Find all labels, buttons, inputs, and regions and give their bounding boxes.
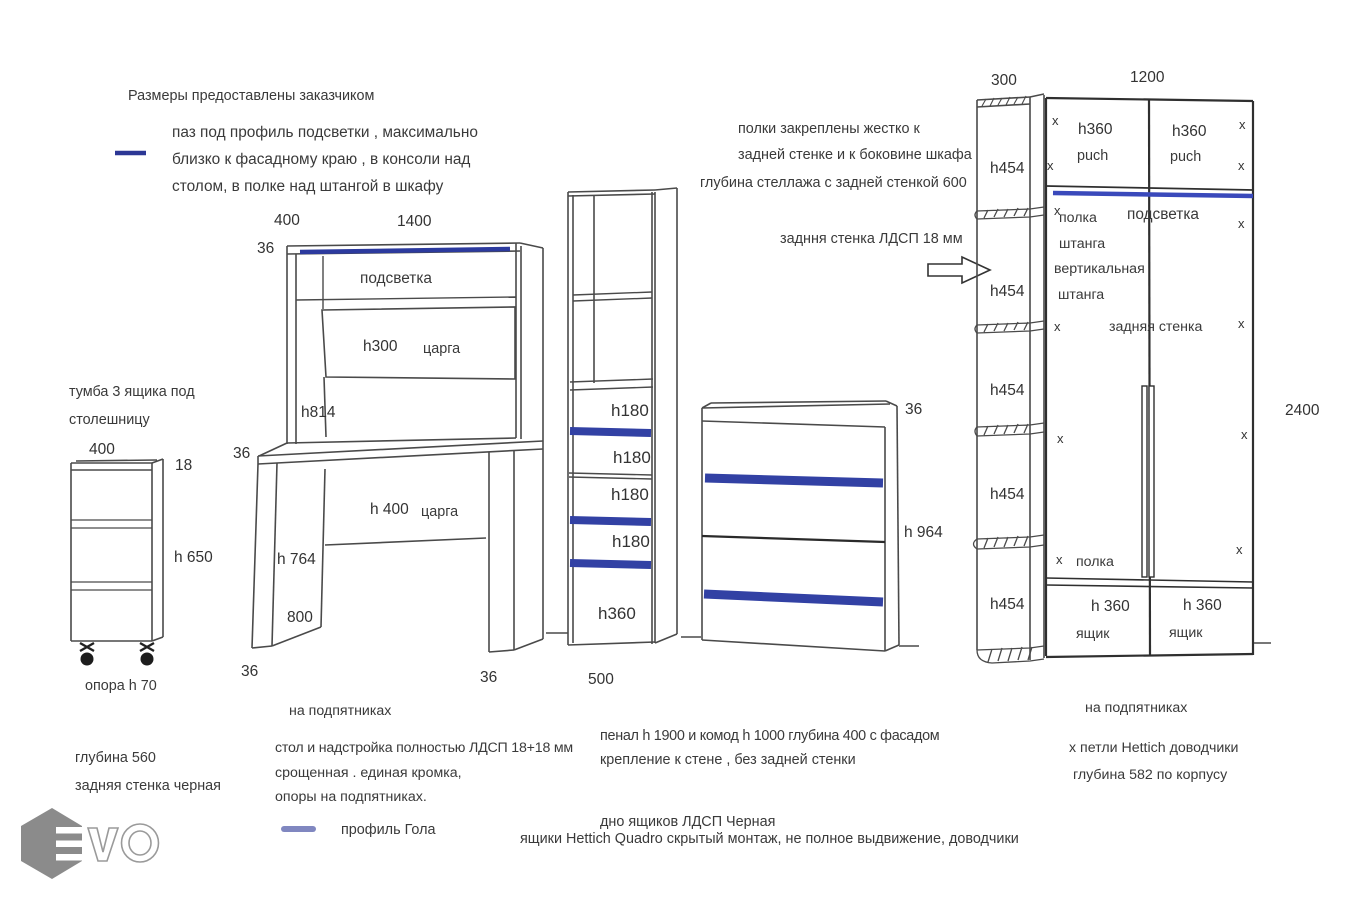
svg-text:паз под профиль подсветки , ма: паз под профиль подсветки , максимально	[172, 124, 478, 141]
svg-text:puch: puch	[1077, 148, 1108, 164]
svg-text:штанга: штанга	[1059, 236, 1105, 252]
svg-text:h454: h454	[990, 486, 1025, 503]
svg-text:задння стенка ЛДСП 18 мм: задння стенка ЛДСП 18 мм	[780, 231, 963, 247]
svg-text:puch: puch	[1170, 149, 1201, 165]
svg-text:пенал h 1900 и комод h 1000 г: пенал h 1900 и комод h 1000 глубина 400 …	[600, 728, 939, 744]
svg-text:столешницу: столешницу	[69, 412, 150, 428]
svg-text:глубина 560: глубина 560	[75, 750, 156, 766]
svg-text:х петли Hettich доводчики: х петли Hettich доводчики	[1069, 740, 1238, 756]
svg-text:x: x	[1057, 431, 1064, 446]
svg-text:штанга: штанга	[1058, 287, 1104, 303]
svg-text:36: 36	[480, 669, 497, 686]
svg-text:18: 18	[175, 457, 192, 474]
svg-text:36: 36	[233, 445, 250, 462]
svg-text:h300: h300	[363, 338, 398, 355]
svg-text:h180: h180	[612, 532, 650, 551]
svg-text:h 400: h 400	[370, 501, 409, 518]
svg-text:500: 500	[588, 671, 614, 688]
svg-text:вертикальная: вертикальная	[1054, 261, 1145, 277]
svg-text:Размеры предоставлены заказчик: Размеры предоставлены заказчиком	[128, 88, 374, 104]
svg-text:h 650: h 650	[174, 549, 213, 566]
svg-text:крепление к стене , без задне: крепление к стене , без задней стенки	[600, 752, 856, 768]
svg-text:тумба 3 ящика под: тумба 3 ящика под	[69, 384, 195, 400]
svg-text:400: 400	[89, 441, 115, 458]
svg-text:x: x	[1241, 427, 1248, 442]
svg-text:1400: 1400	[397, 213, 432, 230]
svg-text:1200: 1200	[1130, 69, 1165, 86]
svg-text:близко к фасадному краю , в к: близко к фасадному краю , в консоли над	[172, 151, 470, 168]
svg-text:на подпятниках: на подпятниках	[1085, 700, 1187, 716]
svg-text:h454: h454	[990, 382, 1025, 399]
svg-text:x: x	[1052, 113, 1059, 128]
svg-text:срощенная . единая кромка,: срощенная . единая кромка,	[275, 765, 462, 781]
svg-text:36: 36	[905, 401, 922, 418]
svg-text:h 360: h 360	[1091, 598, 1130, 615]
svg-text:на подпятниках: на подпятниках	[289, 703, 391, 719]
svg-text:h180: h180	[613, 448, 651, 467]
svg-text:h454: h454	[990, 596, 1025, 613]
svg-text:h 764: h 764	[277, 551, 316, 568]
svg-text:полка: полка	[1076, 554, 1114, 570]
svg-text:h360: h360	[1172, 123, 1207, 140]
svg-text:столом, в полке над штангой в: столом, в полке над штангой в шкафу	[172, 178, 444, 195]
svg-text:подсветка: подсветка	[360, 270, 432, 287]
svg-text:x: x	[1054, 319, 1061, 334]
svg-text:полки закреплены жестко к: полки закреплены жестко к	[738, 121, 920, 137]
svg-text:800: 800	[287, 609, 313, 626]
svg-text:h 360: h 360	[1183, 597, 1222, 614]
svg-text:царга: царга	[423, 341, 460, 357]
svg-text:h814: h814	[301, 404, 336, 421]
svg-text:x: x	[1238, 316, 1245, 331]
svg-text:опора h 70: опора h 70	[85, 678, 157, 694]
svg-text:подсветка: подсветка	[1127, 206, 1199, 223]
svg-text:h360: h360	[598, 604, 636, 623]
svg-text:задней стенке и к боковине шка: задней стенке и к боковине шкафа	[738, 147, 972, 163]
svg-text:x: x	[1056, 552, 1063, 567]
svg-text:глубина 582 по корпусу: глубина 582 по корпусу	[1073, 767, 1228, 783]
svg-text:опоры на подпятниках.: опоры на подпятниках.	[275, 789, 427, 805]
svg-text:36: 36	[257, 240, 274, 257]
svg-text:x: x	[1238, 216, 1245, 231]
svg-text:h 964: h 964	[904, 524, 943, 541]
svg-text:ящик: ящик	[1169, 625, 1203, 641]
svg-text:h454: h454	[990, 283, 1025, 300]
svg-text:h180: h180	[611, 485, 649, 504]
svg-text:h360: h360	[1078, 121, 1113, 138]
svg-text:h180: h180	[611, 401, 649, 420]
svg-text:полка: полка	[1059, 210, 1097, 226]
svg-text:400: 400	[274, 212, 300, 229]
svg-text:300: 300	[991, 72, 1017, 89]
svg-text:задняя стенка черная: задняя стенка черная	[75, 778, 221, 794]
svg-text:x: x	[1047, 158, 1054, 173]
svg-text:x: x	[1239, 117, 1246, 132]
svg-text:h454: h454	[990, 160, 1025, 177]
svg-text:2400: 2400	[1285, 402, 1320, 419]
svg-text:дно ящиков ЛДСП Черная: дно ящиков ЛДСП Черная	[600, 814, 775, 830]
svg-text:x: x	[1238, 158, 1245, 173]
svg-text:профиль Гола: профиль Гола	[341, 822, 436, 838]
svg-text:x: x	[1236, 542, 1243, 557]
svg-text:36: 36	[241, 663, 258, 680]
svg-text:глубина стеллажа с задней стен: глубина стеллажа с задней стенкой 600	[700, 175, 967, 191]
svg-text:ящики Hettich Quadro скрытый м: ящики Hettich Quadro скрытый монтаж, не …	[520, 831, 1019, 847]
svg-text:стол и надстройка полностью ЛД: стол и надстройка полностью ЛДСП 18+18 м…	[275, 740, 573, 756]
svg-text:царга: царга	[421, 504, 458, 520]
svg-text:ящик: ящик	[1076, 626, 1110, 642]
svg-text:задняя стенка: задняя стенка	[1109, 319, 1202, 335]
